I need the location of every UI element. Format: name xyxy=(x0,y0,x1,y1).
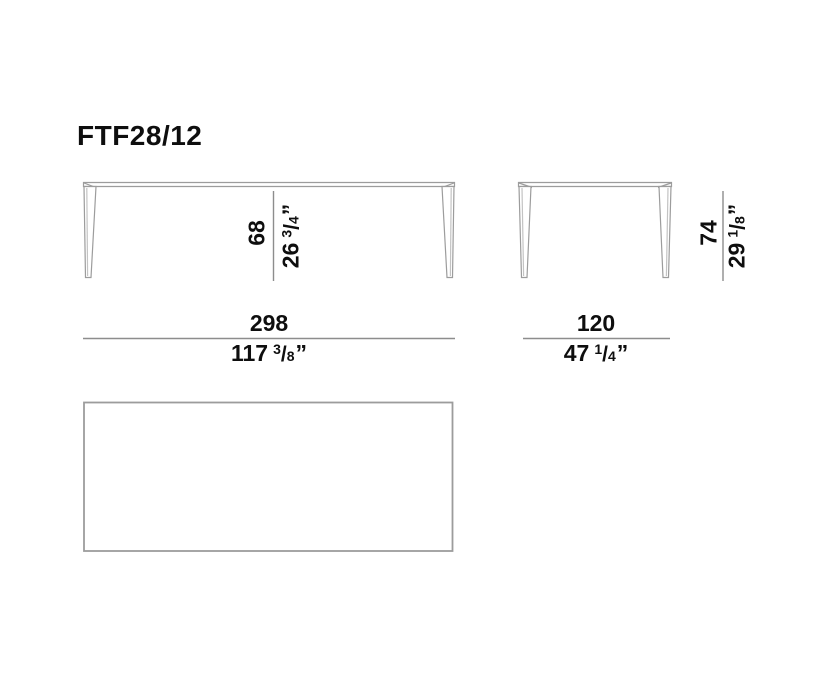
front-left-leg-edge xyxy=(87,188,88,276)
inch-mark: ” xyxy=(278,204,304,216)
fraction-denominator: 8 xyxy=(732,216,748,224)
side-left-leg xyxy=(519,187,531,278)
front-left-leg xyxy=(84,187,96,278)
front-width-inch-label: 1173/8” xyxy=(169,342,369,365)
top-view-outline xyxy=(84,403,453,552)
inch-whole: 26 xyxy=(278,243,304,269)
fraction-slash: / xyxy=(281,224,304,230)
side-depth-inch-label: 471/4” xyxy=(496,342,696,365)
front-width-cm-label: 298 xyxy=(169,312,369,335)
side-depth-cm-label: 120 xyxy=(496,312,696,335)
front-height-inch-label: 263/4” xyxy=(280,204,303,269)
technical-drawing-page: FTF28/12 68 263/4” 74 291/8” 298 1173/8”… xyxy=(0,0,840,679)
inch-whole: 117 xyxy=(231,340,268,366)
fraction-denominator: 4 xyxy=(608,348,616,364)
inch-mark: ” xyxy=(296,340,308,366)
side-height-inch-label: 291/8” xyxy=(726,204,749,269)
fraction-slash: / xyxy=(727,224,750,230)
front-tabletop xyxy=(84,183,455,187)
side-tabletop xyxy=(519,183,672,187)
front-height-cm-label: 68 xyxy=(246,220,269,246)
side-view-drawing xyxy=(519,183,672,278)
side-height-cm-label: 74 xyxy=(698,220,721,246)
fraction-denominator: 4 xyxy=(286,216,302,224)
inch-mark: ” xyxy=(617,340,629,366)
fraction-numerator: 3 xyxy=(279,230,295,238)
fraction-numerator: 1 xyxy=(725,230,741,238)
fraction-numerator: 3 xyxy=(273,341,281,357)
side-right-leg xyxy=(659,187,671,278)
front-right-leg xyxy=(442,187,454,278)
drawing-layer xyxy=(0,0,840,679)
inch-mark: ” xyxy=(724,204,750,216)
fraction-denominator: 8 xyxy=(287,348,295,364)
inch-whole: 47 xyxy=(564,340,590,366)
product-code: FTF28/12 xyxy=(77,122,202,150)
fraction-numerator: 1 xyxy=(594,341,602,357)
front-right-leg-edge xyxy=(450,188,451,276)
inch-whole: 29 xyxy=(724,243,750,269)
